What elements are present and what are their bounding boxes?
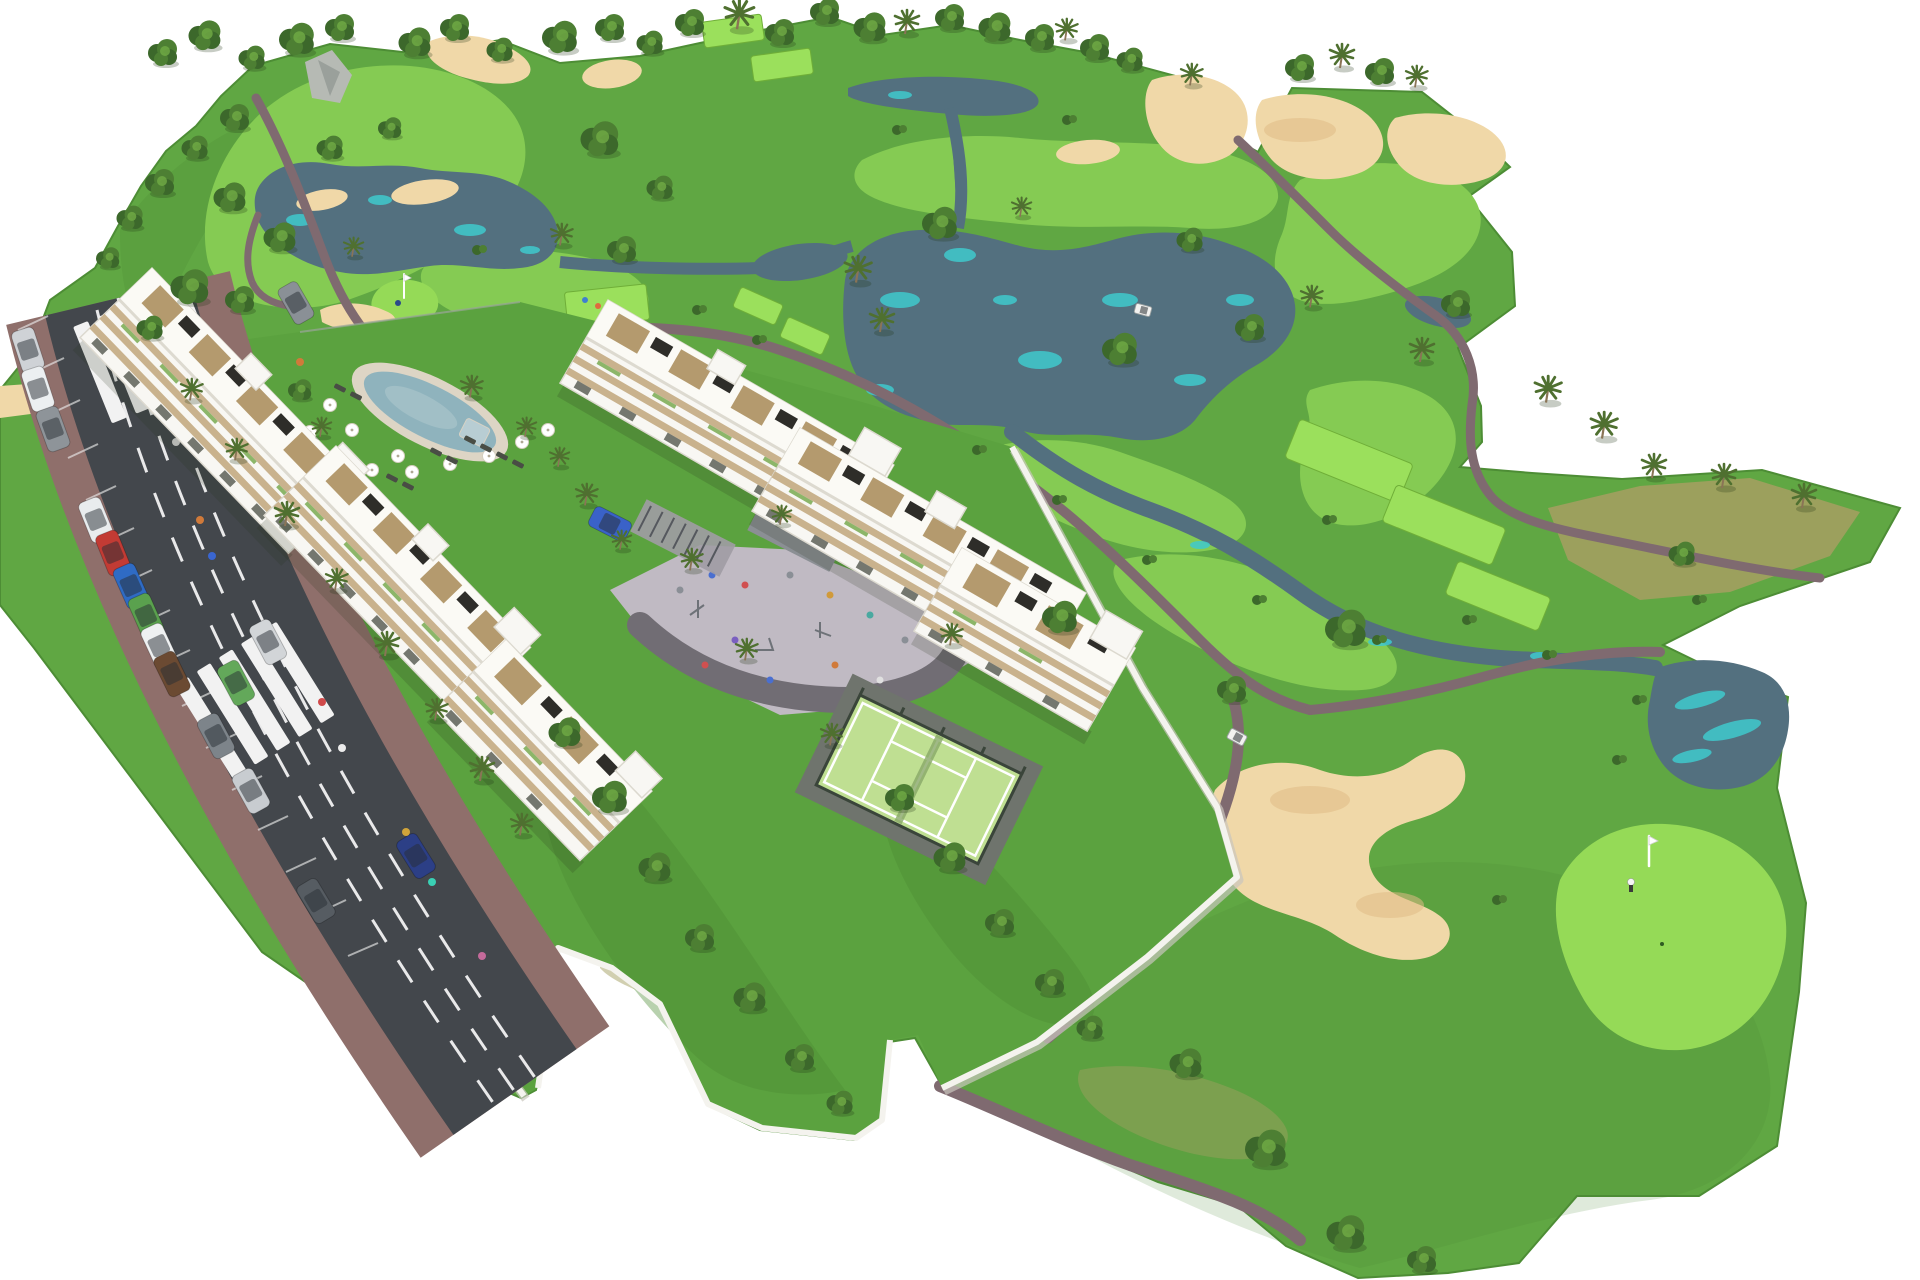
palm-tree-icon bbox=[1406, 66, 1428, 92]
right-pond bbox=[1648, 660, 1789, 789]
palm-tree-icon bbox=[1330, 44, 1354, 73]
aerial-render-canvas: Aerial 3D masterplan rendering of a whit… bbox=[0, 0, 1920, 1280]
golf-hole bbox=[1660, 942, 1664, 946]
golfer-tee bbox=[582, 297, 588, 303]
golfer-legs bbox=[1629, 885, 1633, 892]
tree-icon bbox=[1365, 58, 1396, 87]
bunker-shading bbox=[1264, 118, 1336, 142]
golfer-tee bbox=[595, 303, 601, 309]
tree-icon bbox=[542, 21, 579, 56]
tree-icon bbox=[148, 39, 179, 68]
golfer-left bbox=[395, 300, 401, 306]
bunker-shading bbox=[1270, 786, 1350, 814]
palm-tree-icon bbox=[1591, 412, 1617, 443]
tree-icon bbox=[189, 20, 223, 52]
golfer-right bbox=[1628, 879, 1635, 886]
palm-tree-icon bbox=[1056, 19, 1078, 45]
bunker-shading bbox=[1356, 892, 1424, 918]
tree-icon bbox=[279, 23, 316, 58]
palm-tree-icon bbox=[1535, 376, 1561, 407]
tree-icon bbox=[239, 46, 267, 72]
tree-icon bbox=[595, 14, 626, 43]
tree-icon bbox=[675, 9, 706, 38]
tree-icon bbox=[637, 31, 665, 57]
tree-icon bbox=[1285, 54, 1316, 83]
tree-icon bbox=[325, 14, 356, 43]
masterplan-render: Aerial 3D masterplan rendering of a whit… bbox=[0, 0, 1920, 1280]
